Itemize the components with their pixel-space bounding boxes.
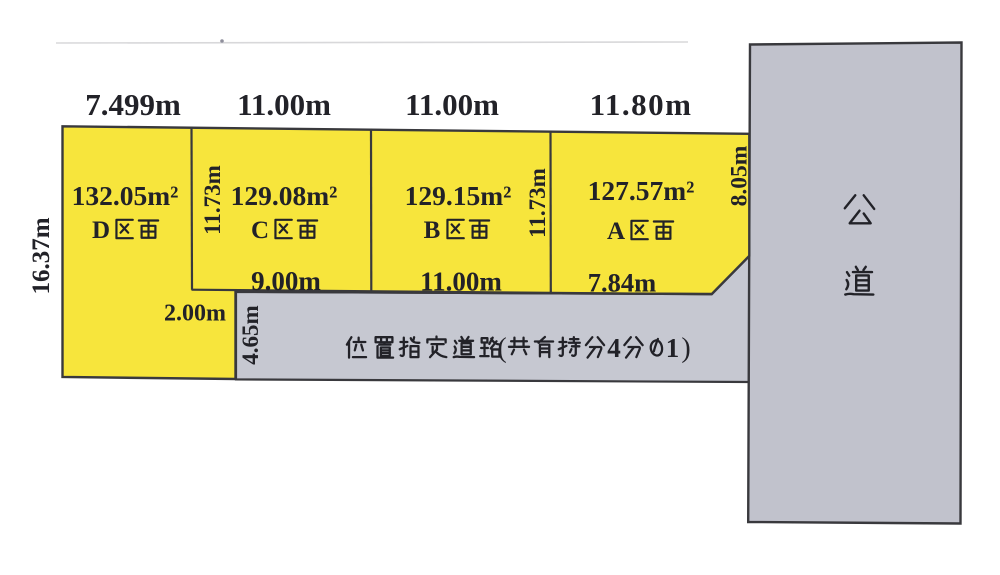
svg-text:A: A bbox=[607, 218, 625, 245]
svg-text:132.05m²: 132.05m² bbox=[72, 180, 179, 211]
svg-text:8.05m: 8.05m bbox=[727, 145, 753, 206]
svg-text:C: C bbox=[251, 217, 269, 244]
svg-text:11.00m: 11.00m bbox=[420, 267, 502, 297]
svg-text:D: D bbox=[92, 217, 110, 244]
svg-text:11.73m: 11.73m bbox=[525, 168, 550, 238]
svg-text:7.499m: 7.499m bbox=[85, 87, 181, 122]
svg-text:2.00m: 2.00m bbox=[164, 301, 226, 327]
svg-text:1: 1 bbox=[666, 333, 680, 363]
svg-text:16.37m: 16.37m bbox=[28, 217, 55, 294]
svg-text:11.80m: 11.80m bbox=[590, 87, 693, 122]
svg-text:129.08m²: 129.08m² bbox=[231, 180, 338, 211]
svg-text:11.73m: 11.73m bbox=[200, 165, 225, 235]
svg-text:11.00m: 11.00m bbox=[405, 87, 499, 122]
svg-text:9.00m: 9.00m bbox=[251, 266, 321, 296]
svg-text:4.65m: 4.65m bbox=[238, 305, 263, 364]
svg-text:11.00m: 11.00m bbox=[237, 87, 331, 122]
svg-text:B: B bbox=[424, 217, 441, 244]
svg-text:7.84m: 7.84m bbox=[588, 268, 656, 298]
svg-text:127.57m²: 127.57m² bbox=[588, 175, 695, 206]
svg-text:129.15m²: 129.15m² bbox=[405, 180, 512, 211]
svg-text:): ) bbox=[681, 333, 690, 364]
svg-text:(: ( bbox=[497, 333, 506, 364]
svg-text:4: 4 bbox=[607, 333, 621, 363]
